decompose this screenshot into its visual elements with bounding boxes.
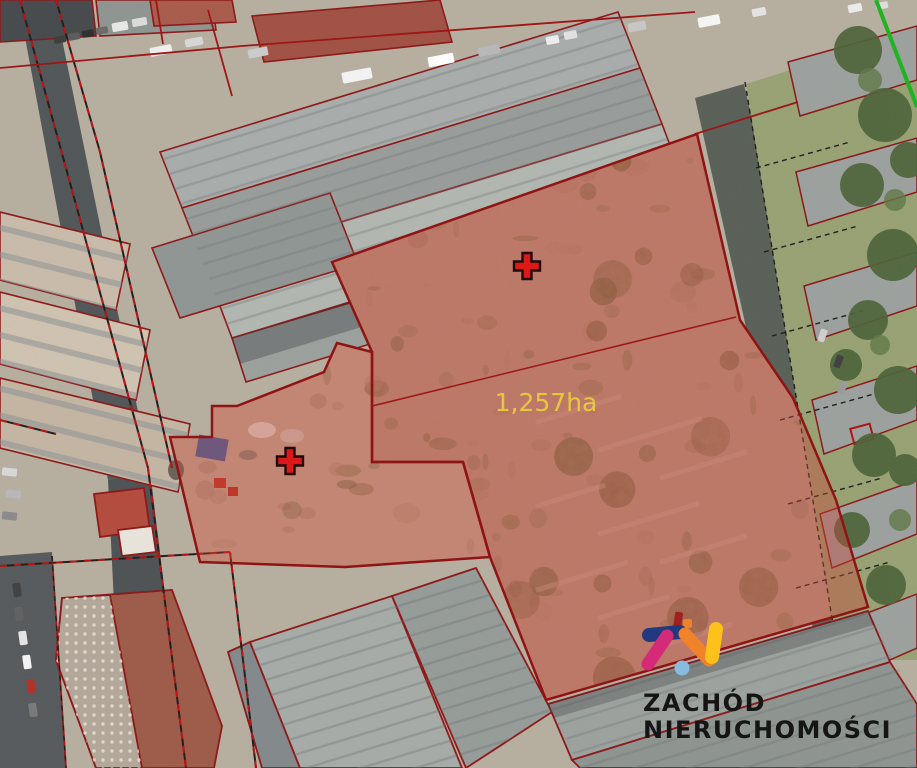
photo-grain bbox=[0, 0, 917, 768]
map-canvas: 1,257ha ZACHÓD NIERUCHOMOŚCI bbox=[0, 0, 917, 768]
listing-map-image[interactable]: 1,257ha ZACHÓD NIERUCHOMOŚCI bbox=[0, 0, 917, 768]
watermark-text-line1: ZACHÓD bbox=[643, 687, 766, 717]
watermark-text-line2: NIERUCHOMOŚCI bbox=[643, 714, 892, 744]
